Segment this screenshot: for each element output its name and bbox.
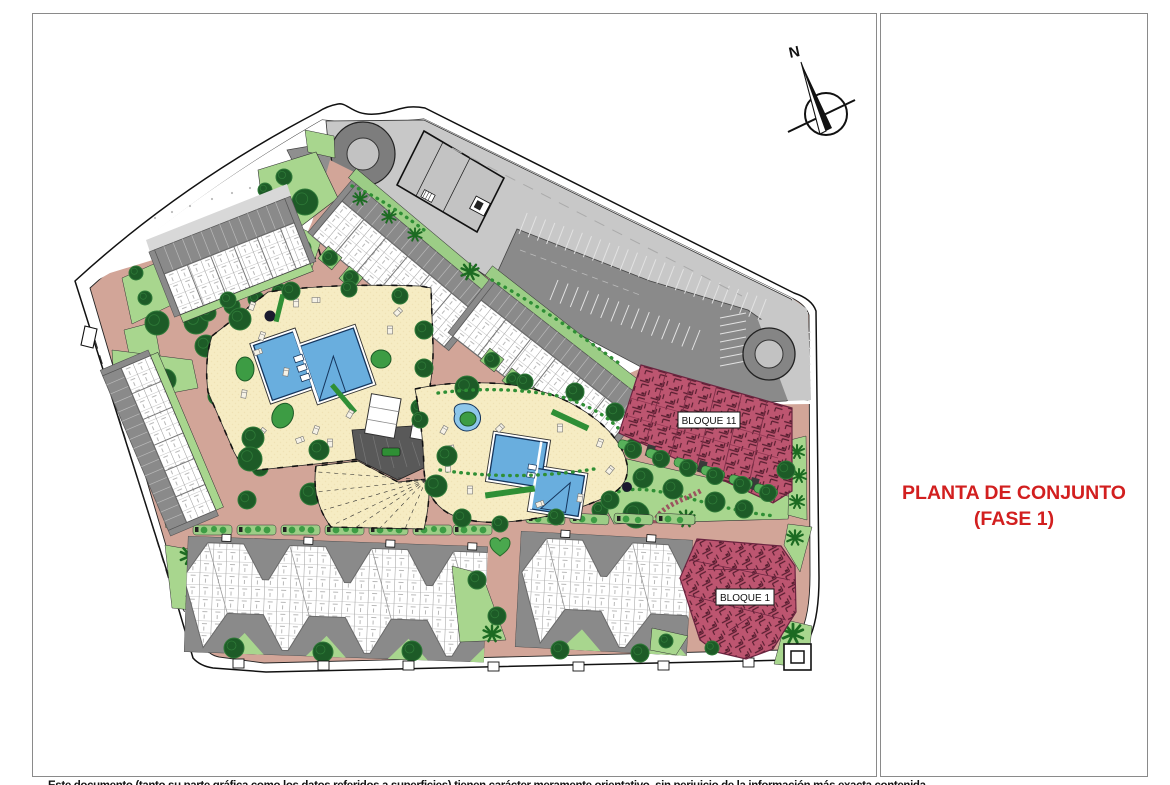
- svg-text:PLANTA DE CONJUNTO: PLANTA DE CONJUNTO: [902, 482, 1126, 504]
- svg-text:(FASE 1): (FASE 1): [974, 508, 1054, 530]
- svg-text:BLOQUE 1: BLOQUE 1: [720, 593, 770, 604]
- svg-text:BLOQUE 11: BLOQUE 11: [682, 416, 737, 427]
- svg-text:Este documento (tanto su parte: Este documento (tanto su parte gráfica c…: [48, 780, 927, 785]
